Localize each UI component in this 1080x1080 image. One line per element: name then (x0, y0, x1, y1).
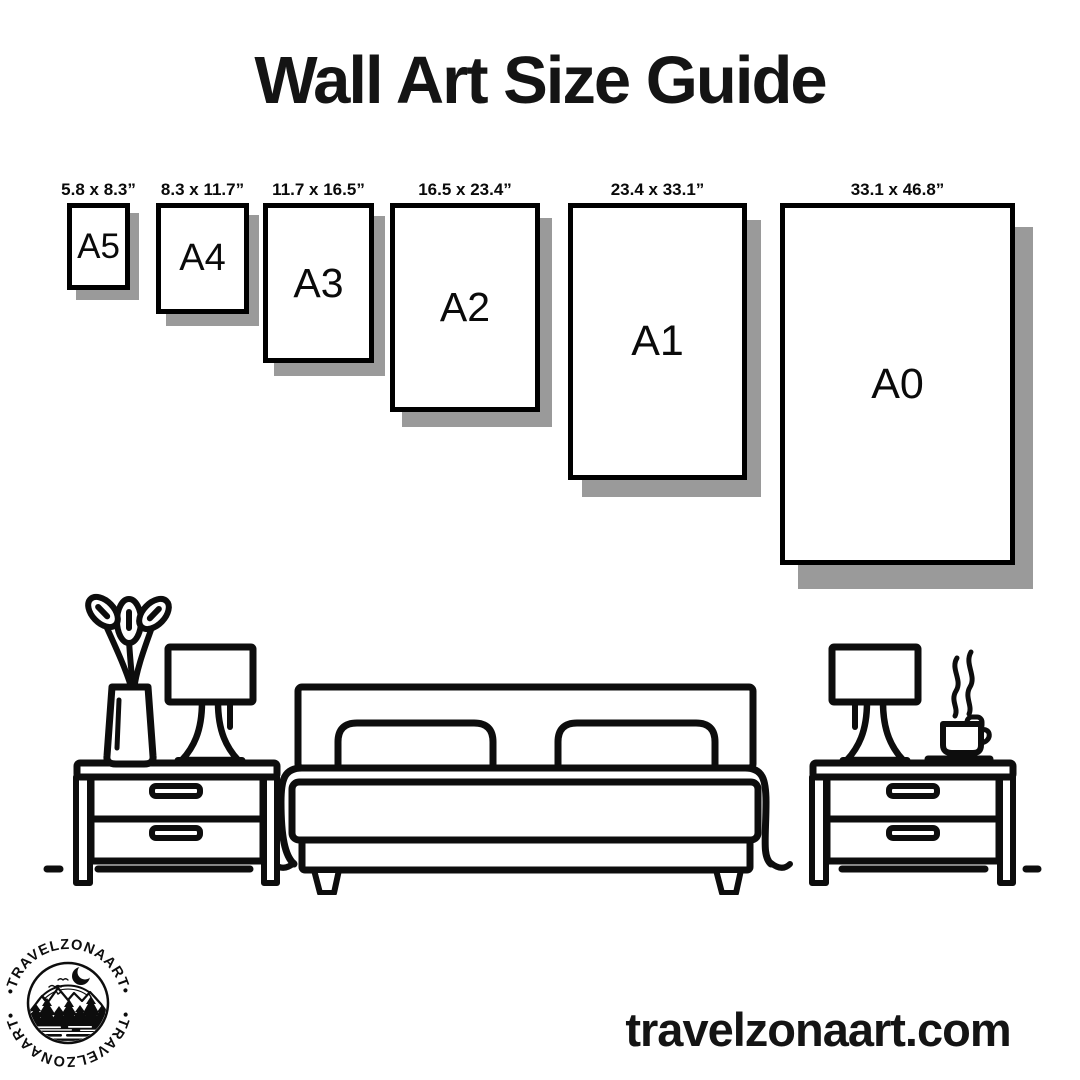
size-frame-a2: 16.5 x 23.4” A2 (390, 203, 540, 412)
size-frame-a3: 11.7 x 16.5” A3 (263, 203, 374, 363)
wall-art-size-guide-poster: Wall Art Size Guide 5.8 x 8.3” A5 8.3 x … (0, 0, 1080, 1080)
size-dimensions-label: 23.4 x 33.1” (611, 180, 705, 200)
size-code-label: A5 (77, 227, 120, 267)
table-lamp-right-icon (832, 647, 918, 761)
size-frame-a5: 5.8 x 8.3” A5 (67, 203, 130, 290)
size-dimensions-label: 33.1 x 46.8” (851, 180, 945, 200)
size-code-label: A3 (293, 260, 343, 307)
size-dimensions-label: 16.5 x 23.4” (418, 180, 512, 200)
size-code-label: A2 (440, 284, 490, 331)
size-frame-a1: 23.4 x 33.1” A1 (568, 203, 747, 480)
size-dimensions-label: 11.7 x 16.5” (272, 180, 365, 200)
size-frame-a0: 33.1 x 46.8” A0 (780, 203, 1015, 565)
nightstand-right (812, 763, 1013, 883)
size-frame-a4: 8.3 x 11.7” A4 (156, 203, 249, 314)
size-code-label: A4 (179, 237, 225, 280)
page-title: Wall Art Size Guide (0, 42, 1080, 119)
table-lamp-left-icon (168, 647, 253, 761)
size-dimensions-label: 5.8 x 8.3” (61, 180, 136, 200)
size-code-label: A1 (631, 317, 684, 366)
double-bed-icon (275, 687, 790, 893)
coffee-cup-icon (928, 652, 990, 759)
nightstand-left (76, 763, 277, 883)
size-dimensions-label: 8.3 x 11.7” (161, 180, 244, 200)
size-code-label: A0 (871, 360, 924, 409)
bedroom-illustration (40, 590, 1045, 895)
brand-logo: •TRAVELZONAART• •TRAVELZONAART• (2, 930, 134, 1074)
website-url: travelzonaart.com (588, 1002, 1048, 1057)
plant-vase-icon (83, 591, 175, 764)
